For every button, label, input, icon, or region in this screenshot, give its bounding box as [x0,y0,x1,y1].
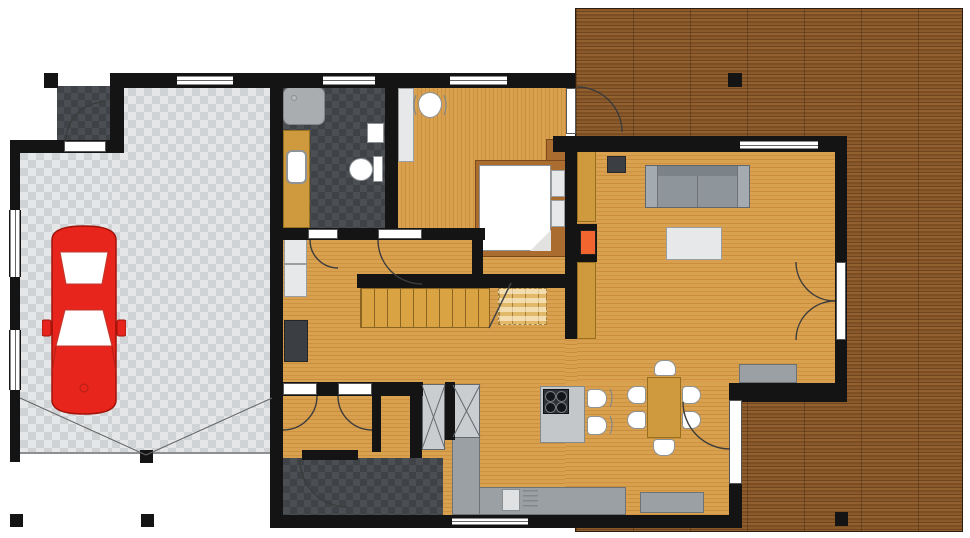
shower-drain [291,95,297,101]
car [42,222,126,418]
wall [110,73,124,153]
wall [357,274,577,288]
entry-porch-floor [57,86,110,142]
dining-chair [653,439,675,456]
wall [565,136,577,339]
toilet-bowl [349,158,373,181]
bathroom-shelf [367,123,384,143]
bar-stool [587,389,607,408]
wall [44,73,58,88]
staircase-treads [360,288,490,328]
wall [445,382,455,440]
cooktop [543,389,569,414]
dining-floor [565,337,577,383]
window [323,75,375,86]
burner-icon [557,403,566,412]
fireplace [580,230,596,255]
dining-chair [682,386,701,404]
sofa [645,165,750,208]
deck-door [566,88,576,134]
sofa-cushion-split [697,176,698,207]
site-marker [10,514,23,527]
window [740,140,818,150]
wall [372,382,381,452]
wall [472,228,483,274]
toilet-tank [373,156,383,182]
mudroom-floor [283,458,443,515]
carport-post [140,450,153,463]
burner-icon [546,392,555,401]
burner-icon [546,403,555,412]
mattress-fold [530,230,551,251]
wall-counter [577,150,596,222]
window [9,210,21,277]
kitchen-counter [452,437,480,515]
dining-chair [627,386,646,404]
wall [385,87,398,228]
storage-cabinet [284,320,308,362]
site-marker [141,514,154,527]
desk [398,88,414,162]
media-unit [607,156,626,173]
window [452,517,528,526]
pillow [551,170,565,197]
window [450,75,507,86]
deck-post [835,512,848,526]
floor-plan [0,0,970,538]
vestibule-door-right [338,383,372,395]
pillow [551,200,565,227]
french-doors [836,262,846,340]
sofa-armrest [646,166,658,207]
bedroom-door [378,229,422,239]
wall [729,383,847,402]
sofa-armrest [737,166,749,207]
wardrobe-crossed [453,384,480,438]
dining-table [647,377,681,438]
bathroom-door [308,229,338,239]
bench [739,364,797,383]
staircase-upper-dashed [498,288,547,325]
front-door [64,141,106,152]
sofa-backrest [646,166,749,176]
dining-chair [654,360,676,376]
wall [270,73,283,528]
wall [410,382,422,458]
wall [302,450,358,460]
kitchen-sink [502,489,520,511]
washbasin [286,150,307,184]
window [9,330,21,390]
bar-stool [587,416,607,435]
vestibule-door-left [283,383,317,395]
dining-chair [627,411,646,429]
deck-post [728,73,742,87]
bench [640,492,704,513]
coffee-table [666,227,722,260]
shower-tray [283,87,325,125]
wall [10,140,20,462]
wall-counter [577,262,596,339]
storage-cabinet [284,264,307,297]
window [177,75,233,86]
garage-floor [112,88,270,454]
sink-drainer [523,490,538,510]
dining-side-door [729,400,742,484]
burner-icon [557,392,566,401]
dining-chair [682,411,701,429]
wardrobe-crossed [422,384,445,450]
